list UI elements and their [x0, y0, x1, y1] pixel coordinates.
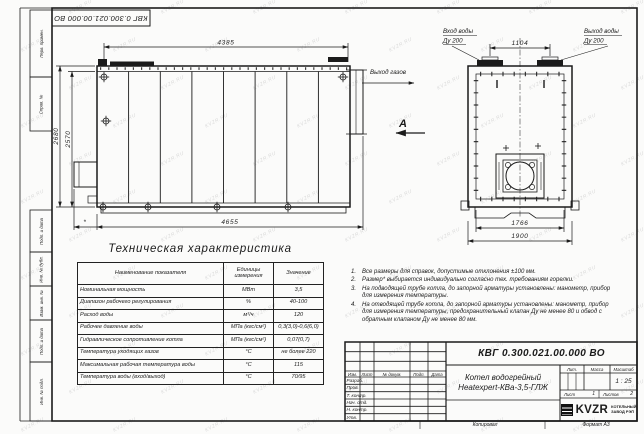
logo-subtitle: КОТЕЛЬНЫЙ ЗАВОД РЭП [611, 405, 636, 414]
spec-row: Максимальная рабочая температура воды°С1… [78, 360, 324, 373]
tb-row-nkontr: Н. контр. [345, 406, 375, 413]
spec-row: Рабочее давление водыМПа (кгс/см²)0,3(3,… [78, 322, 324, 335]
tb-row-prov: Пров. [345, 384, 375, 391]
spec-name: Расход воды [78, 310, 224, 323]
tb-lit-label: Лит. [560, 365, 584, 373]
note-3: 3.На подводящей трубе котла, до запорной… [351, 286, 615, 301]
company-logo: KVZR КОТЕЛЬНЫЙ ЗАВОД РЭП [560, 398, 637, 421]
format-label: Формат А3 [555, 422, 637, 428]
spec-units: °С [224, 372, 274, 385]
tb-scale-value: 1 : 25 [610, 373, 637, 390]
logo-mark-icon [561, 404, 573, 416]
dim-nozzle-spacing: 1104 [512, 40, 529, 47]
tb-scale-label: Масштаб [610, 365, 637, 373]
tb-row-nachotd: Нач. отд. [345, 399, 375, 406]
spec-name: Температура уходящих газов [78, 347, 224, 360]
spec-header-units: Единицы измерения [224, 263, 274, 285]
spec-units: °С [224, 347, 274, 360]
tb-col-dokum: № докум. [374, 371, 410, 377]
spec-row: Гидравлическое сопротивление котлаМПа (к… [78, 335, 324, 348]
spec-units: м³/ч [224, 310, 274, 323]
frame-strip-vzam-inv: Взам. инв. № [30, 286, 52, 320]
spec-row: Расход водым³/ч120 [78, 310, 324, 323]
boiler-end-view [461, 38, 579, 218]
dim-star: * [83, 219, 86, 226]
spec-table-title: Техническая характеристика [77, 243, 323, 257]
dim-height-outer: 2680 [53, 127, 60, 145]
spec-value: 120 [274, 310, 324, 323]
spec-value: 40-100 [274, 297, 324, 310]
spec-value: 3,5 [274, 285, 324, 298]
spec-header-value: Значение [274, 263, 324, 285]
boiler-side-view [74, 57, 367, 213]
spec-value: 115 [274, 360, 324, 373]
view-a-label: А [398, 118, 407, 130]
spec-units: МПа (кгс/см²) [224, 335, 274, 348]
frame-strip-inv-dubl: Инв. № дубл. [30, 252, 52, 286]
spec-row: Диапазон рабочего регулирования%40-100 [78, 297, 324, 310]
tb-sheets-cell: Листов2 [599, 390, 637, 398]
spec-header-name: Наименование показателя [78, 263, 224, 285]
water-outlet-dn: Ду 200 [583, 38, 604, 45]
reference-target-marks [98, 72, 348, 212]
spec-row: Температура уходящих газов°Сне более 220 [78, 347, 324, 360]
end-view-dimensions [443, 36, 622, 246]
tb-col-podp: Подп. [410, 371, 428, 377]
spec-row: Температура воды (вход/выход)°С70/95 [78, 372, 324, 385]
tb-row-tkontr: Т. контр. [345, 392, 375, 399]
tb-product-name: Котел водогрейный Heatexpert-КВа-3,5-ГЛЖ [446, 365, 560, 400]
water-outlet-label: Выход воды [584, 28, 619, 35]
tb-doc-number: КВГ 0.300.021.00.000 ВО [446, 342, 637, 365]
note-2: 2.Размер* выбирается индивидуально согла… [351, 277, 615, 284]
spec-units: МПа (кгс/см²) [224, 322, 274, 335]
spec-header-row: Наименование показателя Единицы измерени… [78, 263, 324, 285]
spec-units: МВт [224, 285, 274, 298]
logo-text: KVZR [576, 404, 609, 416]
spec-name: Диапазон рабочего регулирования [78, 297, 224, 310]
spec-name: Номинальная мощность [78, 285, 224, 298]
spec-units: % [224, 297, 274, 310]
spec-name: Рабочее давление воды [78, 322, 224, 335]
water-inlet-label: Вход воды [443, 28, 473, 35]
spec-value: 70/95 [274, 372, 324, 385]
spec-value: 0,3(3,0)-0,6(6,0) [274, 322, 324, 335]
title-block: Изм. Лист № докум. Подп. Дата Разраб. Пр… [345, 342, 637, 421]
frame-strip-podp-data-1: Подп. и дата [30, 210, 52, 252]
tb-mass-label: Масса [584, 365, 610, 373]
dim-length-top: 4385 [217, 40, 234, 47]
note-4: 4.На отводящей трубе котла, до запорной … [351, 302, 615, 324]
dim-height-inner: 2570 [65, 130, 72, 148]
spec-value: 0,07(0,7) [274, 335, 324, 348]
frame-strip-podp-data-2: Подп. и дата [30, 320, 52, 362]
gas-outlet-label: Выход газов [370, 69, 407, 76]
spec-name: Гидравлическое сопротивление котла [78, 335, 224, 348]
spec-table: Наименование показателя Единицы измерени… [77, 262, 324, 385]
spec-value: не более 220 [274, 347, 324, 360]
note-1: 1.Все размеры для справок, допустимые от… [351, 269, 615, 276]
spec-name: Максимальная рабочая температура воды [78, 360, 224, 373]
frame-strip-perv-primen: Перв. примен. [30, 10, 52, 77]
spec-row: Номинальная мощностьМВт3,5 [78, 285, 324, 298]
tb-col-data: Дата [428, 371, 446, 377]
frame-strip-sprav-no: Справ. № [30, 77, 52, 131]
water-inlet-dn: Ду 200 [442, 38, 463, 45]
spec-units: °С [224, 360, 274, 373]
tb-row-utv: Утв. [345, 414, 375, 421]
dim-width-outer: 1900 [511, 233, 528, 240]
dim-length-bottom: 4655 [221, 219, 238, 226]
tb-row-razrab: Разраб. [345, 377, 375, 384]
spec-name: Температура воды (вход/выход) [78, 372, 224, 385]
dim-width-inner: 1766 [511, 220, 528, 227]
doc-number-top-rotated: КВГ 0.300.021.00.000 ВО [52, 10, 150, 26]
frame-strip-inv-podl: Инв. № подл. [30, 362, 52, 421]
tb-sheet-cell: Лист1 [560, 390, 599, 398]
notes-list: 1.Все размеры для справок, допустимые от… [351, 269, 615, 325]
copied-label: Копировал [430, 422, 540, 428]
